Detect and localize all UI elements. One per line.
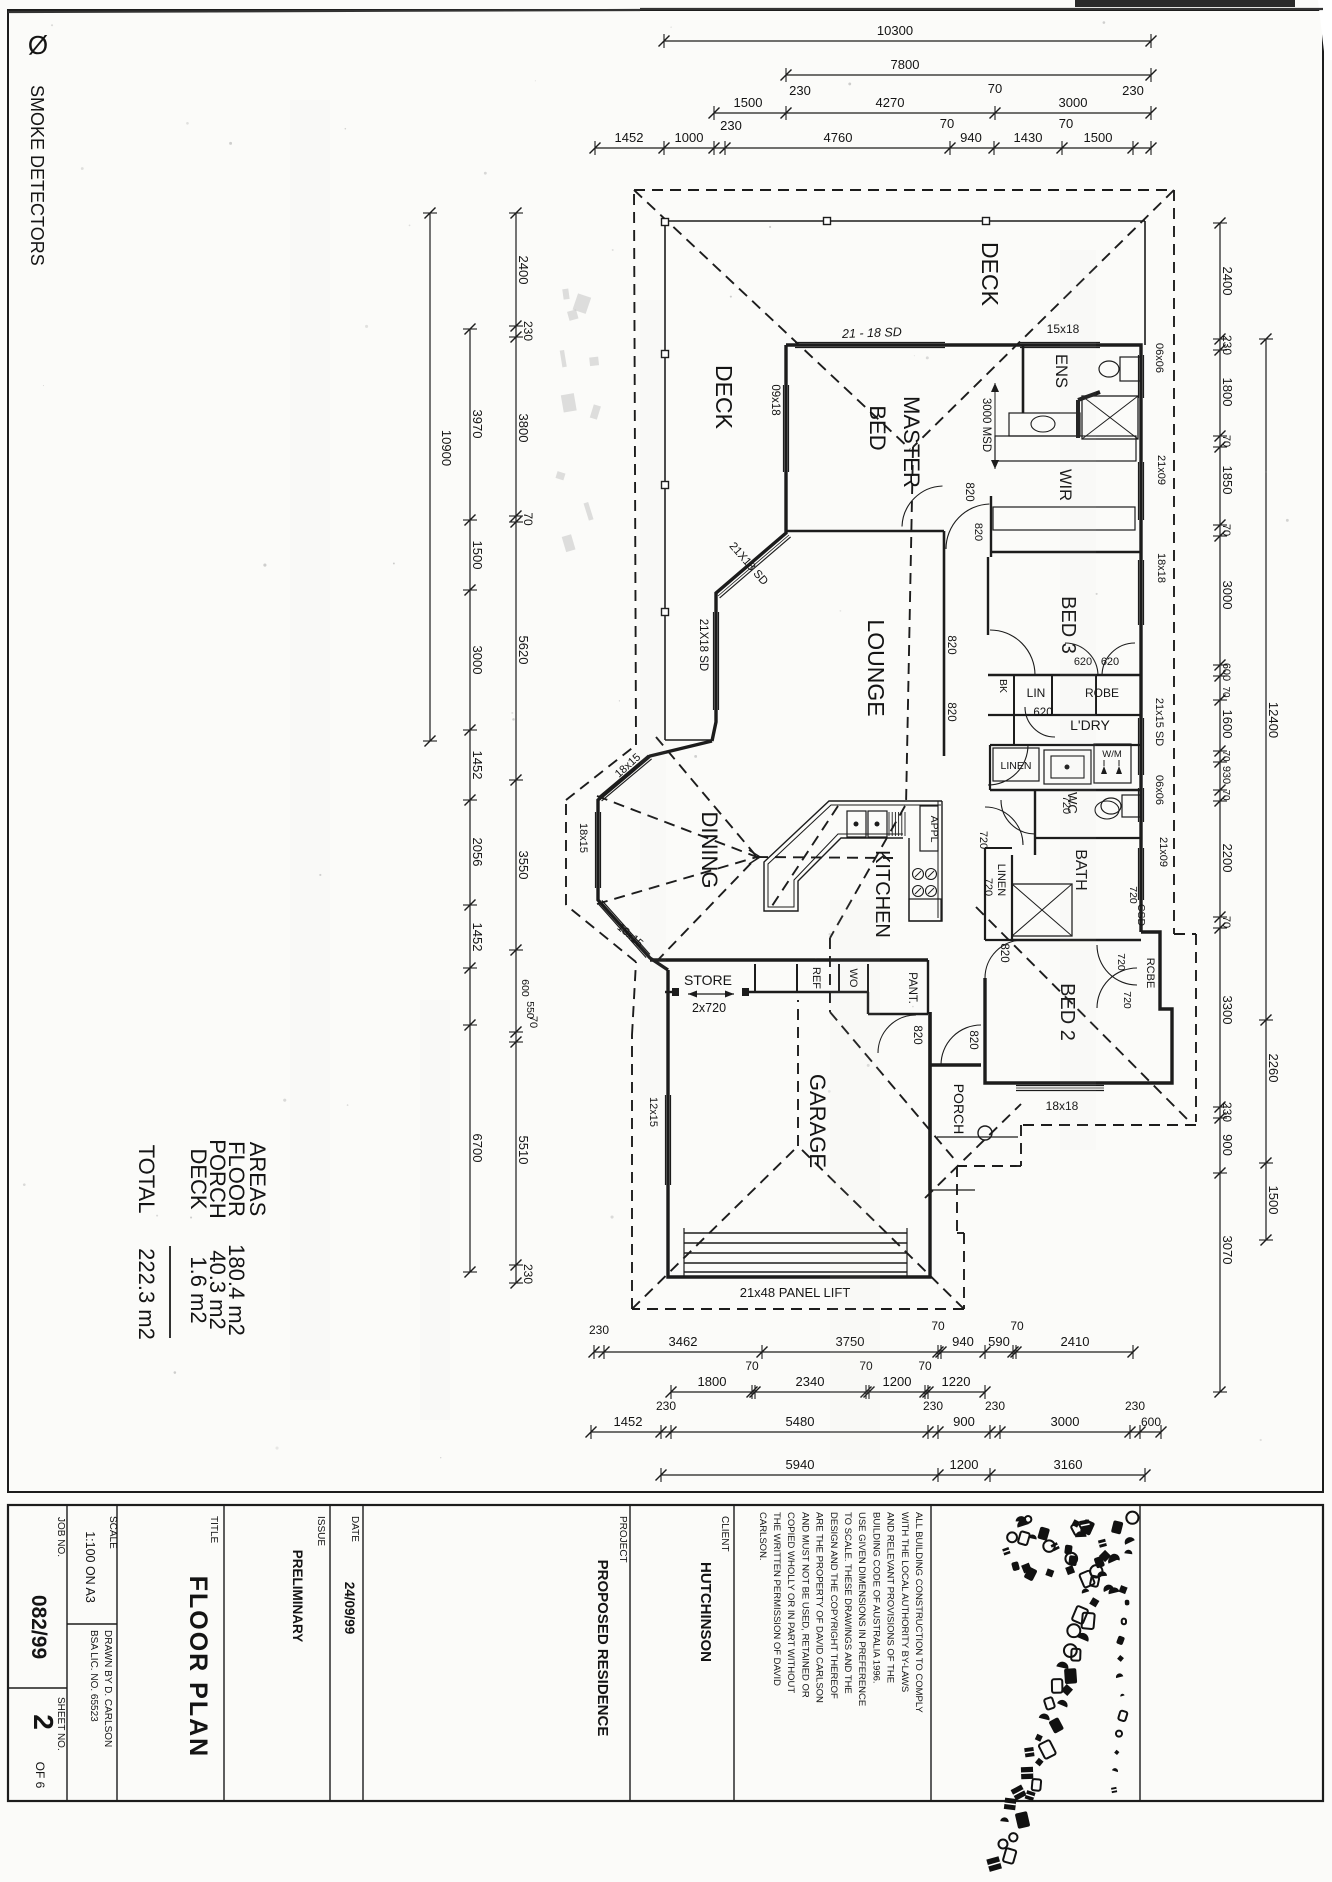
svg-text:PROJECT: PROJECT	[617, 1516, 628, 1563]
svg-text:600: 600	[519, 979, 531, 997]
svg-text:3300: 3300	[1220, 996, 1235, 1025]
svg-text:2: 2	[28, 1714, 59, 1730]
svg-text:230: 230	[521, 321, 535, 341]
svg-text:620: 620	[1101, 656, 1119, 668]
svg-text:70: 70	[918, 1359, 932, 1373]
svg-text:2056: 2056	[470, 838, 485, 867]
svg-text:3000 MSD: 3000 MSD	[980, 398, 992, 452]
svg-text:70: 70	[940, 116, 954, 131]
svg-text:3160: 3160	[1054, 1457, 1083, 1472]
svg-text:09x18: 09x18	[769, 384, 781, 415]
svg-text:DESIGN AND THE COPYRIGHT THERE: DESIGN AND THE COPYRIGHT THEREOF	[828, 1512, 839, 1699]
svg-text:PRELIMINARY: PRELIMINARY	[290, 1550, 305, 1643]
svg-text:CLIENT: CLIENT	[719, 1516, 730, 1552]
svg-text:820: 820	[967, 1030, 979, 1049]
svg-text:BK: BK	[997, 679, 1009, 693]
svg-text:70: 70	[527, 1016, 539, 1028]
svg-text:RCBE: RCBE	[1144, 958, 1156, 989]
svg-text:230: 230	[1125, 1399, 1145, 1413]
svg-text:06x06: 06x06	[1153, 775, 1165, 805]
svg-text:230: 230	[720, 118, 742, 133]
svg-text:940: 940	[952, 1334, 974, 1349]
svg-text:TITLE: TITLE	[208, 1516, 219, 1544]
svg-text:AND MUST NOT BE USED, RETAINED: AND MUST NOT BE USED, RETAINED OR	[799, 1512, 810, 1698]
svg-text:230: 230	[1220, 1102, 1234, 1122]
svg-text:4760: 4760	[824, 130, 853, 145]
svg-text:2200: 2200	[1220, 844, 1235, 873]
svg-text:720: 720	[1121, 991, 1133, 1009]
svg-text:12400: 12400	[1266, 702, 1281, 738]
svg-text:REF: REF	[810, 967, 822, 989]
svg-text:W/M: W/M	[1102, 749, 1122, 760]
svg-text:230: 230	[789, 83, 811, 98]
svg-text:CARLSON.: CARLSON.	[757, 1512, 768, 1561]
svg-text:3000: 3000	[1220, 581, 1235, 610]
svg-text:230: 230	[589, 1323, 609, 1337]
svg-text:600: 600	[1220, 663, 1232, 681]
svg-text:6700: 6700	[470, 1134, 485, 1163]
svg-text:ALL BUILDING CONSTRUCTION TO C: ALL BUILDING CONSTRUCTION TO COMPLY	[913, 1512, 924, 1713]
svg-text:2340: 2340	[796, 1374, 825, 1389]
svg-text:1200: 1200	[883, 1374, 912, 1389]
svg-text:24/09/99: 24/09/99	[342, 1582, 357, 1635]
svg-text:1800: 1800	[698, 1374, 727, 1389]
svg-text:820: 820	[945, 635, 957, 654]
svg-text:MASTER: MASTER	[899, 396, 924, 488]
svg-text:APPL: APPL	[928, 816, 940, 843]
svg-text:820: 820	[911, 1025, 923, 1044]
svg-text:STORE: STORE	[684, 972, 732, 988]
svg-text:1850: 1850	[1220, 466, 1235, 495]
svg-text:OF 6: OF 6	[33, 1762, 47, 1789]
svg-text:70: 70	[1220, 916, 1232, 928]
svg-text:DECK: DECK	[977, 242, 1003, 307]
svg-text:21x09: 21x09	[1155, 455, 1167, 485]
svg-text:820: 820	[972, 523, 984, 541]
svg-text:GARAGE: GARAGE	[805, 1074, 830, 1168]
svg-text:930: 930	[1220, 766, 1232, 784]
svg-text:70: 70	[1220, 789, 1231, 801]
svg-text:720: 720	[1115, 953, 1127, 971]
svg-text:940: 940	[960, 130, 982, 145]
svg-text:1452: 1452	[470, 751, 485, 780]
svg-text:2400: 2400	[516, 256, 531, 285]
svg-text:2260: 2260	[1266, 1054, 1281, 1083]
svg-text:1.6 m2: 1.6 m2	[186, 1256, 211, 1323]
svg-text:1800: 1800	[1220, 378, 1235, 407]
svg-text:3550: 3550	[516, 851, 531, 880]
svg-text:5480: 5480	[786, 1414, 815, 1429]
svg-text:1452: 1452	[470, 923, 485, 952]
svg-text:3070: 3070	[1220, 1236, 1235, 1265]
svg-text:230: 230	[1220, 335, 1234, 355]
svg-text:USE GIVEN DIMENSIONS IN PREFER: USE GIVEN DIMENSIONS IN PREFERENCE	[856, 1512, 867, 1706]
svg-text:BSA LIC. NO. 65523: BSA LIC. NO. 65523	[88, 1630, 99, 1722]
svg-text:1500: 1500	[1266, 1186, 1281, 1215]
svg-text:1220: 1220	[942, 1374, 971, 1389]
svg-text:720: 720	[977, 831, 989, 849]
svg-text:70: 70	[1059, 116, 1073, 131]
svg-text:DINING: DINING	[697, 812, 722, 889]
svg-text:1000: 1000	[675, 130, 704, 145]
svg-text:1500: 1500	[734, 95, 763, 110]
svg-text:900: 900	[953, 1414, 975, 1429]
svg-text:4270: 4270	[876, 95, 905, 110]
svg-text:HUTCHINSON: HUTCHINSON	[697, 1562, 714, 1662]
svg-text:230: 230	[521, 1264, 535, 1284]
svg-text:70: 70	[1220, 435, 1232, 447]
svg-text:820: 820	[998, 943, 1010, 962]
svg-text:1452: 1452	[614, 1414, 643, 1429]
svg-text:70: 70	[521, 512, 535, 526]
svg-text:70: 70	[1220, 686, 1231, 698]
svg-text:LINEN: LINEN	[995, 864, 1007, 896]
svg-text:230: 230	[923, 1399, 943, 1413]
svg-text:082/99: 082/99	[27, 1595, 50, 1659]
svg-text:CSD: CSD	[1135, 904, 1147, 927]
svg-text:1452: 1452	[615, 130, 644, 145]
svg-text:2400: 2400	[1220, 267, 1235, 296]
svg-text:Ø: Ø	[28, 30, 48, 60]
svg-text:70: 70	[1010, 1319, 1024, 1333]
svg-text:600: 600	[1141, 1415, 1161, 1429]
svg-text:DATE: DATE	[349, 1516, 360, 1542]
svg-text:1500: 1500	[1084, 130, 1113, 145]
svg-text:10300: 10300	[877, 23, 913, 38]
svg-text:18x18: 18x18	[1155, 553, 1167, 583]
svg-text:21x09: 21x09	[1157, 837, 1169, 867]
svg-text:WITH THE LOCAL AUTHORITY BY-LA: WITH THE LOCAL AUTHORITY BY-LAWS	[899, 1512, 910, 1692]
svg-text:70: 70	[1220, 524, 1232, 536]
svg-text:AND RELEVANT PROVISIONS OF THE: AND RELEVANT PROVISIONS OF THE	[885, 1512, 896, 1683]
svg-text:TOTAL: TOTAL	[134, 1145, 159, 1214]
svg-text:620: 620	[1033, 707, 1052, 719]
svg-text:DRAWN BY D. CARLSON: DRAWN BY D. CARLSON	[102, 1630, 113, 1747]
svg-text:LOUNGE: LOUNGE	[863, 619, 889, 716]
svg-text:21x15 SD: 21x15 SD	[1153, 698, 1165, 746]
svg-text:70: 70	[931, 1319, 945, 1333]
svg-text:1600: 1600	[1220, 710, 1235, 739]
svg-text:3000: 3000	[1051, 1414, 1080, 1429]
svg-text:230: 230	[1122, 83, 1144, 98]
svg-text:PANT.: PANT.	[906, 972, 918, 1004]
svg-text:3000: 3000	[1059, 95, 1088, 110]
svg-text:900: 900	[1220, 1134, 1235, 1156]
svg-text:720: 720	[1127, 886, 1139, 904]
svg-text:21 - 18 SD: 21 - 18 SD	[841, 325, 902, 341]
svg-text:10900: 10900	[439, 430, 454, 466]
svg-text:1500: 1500	[470, 541, 485, 570]
svg-text:1:100 ON A3: 1:100 ON A3	[83, 1531, 97, 1603]
svg-text:1200: 1200	[950, 1457, 979, 1472]
svg-text:PROPOSED RESIDENCE: PROPOSED RESIDENCE	[594, 1560, 611, 1737]
svg-text:DECK: DECK	[186, 1148, 211, 1209]
svg-text:TO SCALE. THESE DRAWINGS AND T: TO SCALE. THESE DRAWINGS AND THE	[842, 1512, 853, 1694]
svg-text:3800: 3800	[516, 414, 531, 443]
svg-text:PORCH: PORCH	[951, 1084, 967, 1135]
svg-text:06x06: 06x06	[1153, 343, 1165, 373]
svg-text:720: 720	[982, 878, 994, 896]
svg-text:70: 70	[745, 1359, 759, 1373]
svg-text:230: 230	[656, 1399, 676, 1413]
svg-text:5620: 5620	[516, 636, 531, 665]
svg-text:3000: 3000	[470, 646, 485, 675]
svg-text:5510: 5510	[516, 1136, 531, 1165]
svg-text:2410: 2410	[1061, 1334, 1090, 1349]
svg-text:THE WRITTEN PERMISSION OF DAVI: THE WRITTEN PERMISSION OF DAVID	[771, 1512, 782, 1686]
svg-text:BUILDING CODE OF AUSTRALIA 199: BUILDING CODE OF AUSTRALIA 1996.	[870, 1512, 881, 1684]
svg-text:3462: 3462	[669, 1334, 698, 1349]
svg-text:590: 590	[988, 1334, 1010, 1349]
svg-text:18x15: 18x15	[577, 823, 589, 853]
svg-text:2x720: 2x720	[692, 1001, 726, 1015]
svg-text:SCALE: SCALE	[107, 1516, 118, 1549]
svg-text:222.3 m2: 222.3 m2	[134, 1248, 159, 1340]
svg-text:ARE THE PROPERTY OF DAVID CARL: ARE THE PROPERTY OF DAVID CARLSON	[814, 1512, 825, 1703]
svg-text:COPIED WHOLLY OR IN PART WITHO: COPIED WHOLLY OR IN PART WITHOUT	[785, 1512, 796, 1693]
svg-text:LIN: LIN	[1027, 686, 1046, 700]
svg-text:70: 70	[1220, 750, 1231, 762]
svg-text:FLOOR PLAN: FLOOR PLAN	[184, 1576, 212, 1759]
svg-text:SMOKE DETECTORS: SMOKE DETECTORS	[27, 85, 47, 266]
svg-text:LINEN: LINEN	[1001, 760, 1032, 772]
svg-text:ISSUE: ISSUE	[315, 1516, 326, 1546]
svg-text:DECK: DECK	[711, 365, 737, 430]
svg-text:820: 820	[945, 702, 957, 721]
svg-text:21X18 SD: 21X18 SD	[697, 619, 709, 671]
svg-text:21X18 SD: 21X18 SD	[727, 540, 770, 587]
svg-text:5940: 5940	[786, 1457, 815, 1472]
svg-text:12x15: 12x15	[647, 1097, 659, 1127]
svg-text:1430: 1430	[1014, 130, 1043, 145]
svg-text:820: 820	[963, 482, 975, 501]
svg-text:70: 70	[988, 81, 1002, 96]
svg-text:JOB NO.: JOB NO.	[55, 1517, 66, 1557]
svg-text:7800: 7800	[891, 57, 920, 72]
svg-text:230: 230	[985, 1399, 1005, 1413]
svg-text:3970: 3970	[470, 410, 485, 439]
svg-text:BED: BED	[865, 405, 890, 450]
